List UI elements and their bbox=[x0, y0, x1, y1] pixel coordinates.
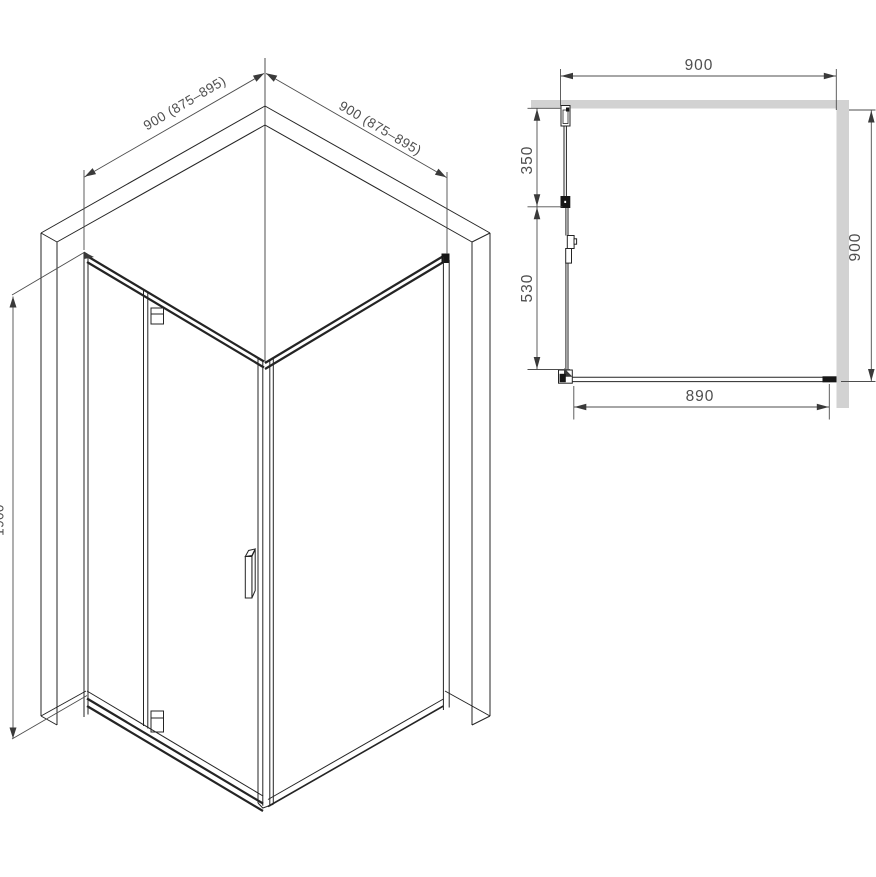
plan-view: 900 900 350 530 bbox=[519, 57, 876, 420]
fixed-side-panel bbox=[265, 254, 450, 807]
rail-end-cap bbox=[442, 254, 450, 264]
plan-panel-end-cap bbox=[823, 376, 837, 382]
dim-line-width-left bbox=[85, 74, 265, 178]
bottom-pivot-hinge bbox=[151, 711, 164, 732]
dim-label-plan-right: 900 bbox=[847, 233, 864, 262]
plan-door-assembly bbox=[559, 106, 577, 384]
door-bottom-rail bbox=[87, 691, 263, 796]
dim-label-height: 1900 bbox=[0, 504, 7, 536]
diagram-canvas: 900 (875–895) 900 (875–895) 1900 bbox=[0, 0, 876, 877]
shower-door-panel bbox=[84, 252, 273, 811]
plan-wall-top bbox=[531, 100, 849, 109]
plan-door-handle bbox=[566, 236, 577, 264]
dim-label-width-left: 900 (875–895) bbox=[141, 73, 229, 133]
dim-label-plan-bottom: 890 bbox=[686, 388, 715, 405]
side-panel-top-rail bbox=[265, 256, 444, 363]
isometric-view: 900 (875–895) 900 (875–895) 1900 bbox=[0, 58, 490, 811]
door-top-rail bbox=[87, 256, 264, 362]
shower-enclosure-drawing: 900 (875–895) 900 (875–895) 1900 bbox=[0, 0, 876, 877]
dim-line-width-right bbox=[266, 74, 447, 178]
right-wall bbox=[265, 106, 490, 725]
dim-label-plan-530: 530 bbox=[519, 274, 536, 303]
left-wall bbox=[41, 106, 265, 725]
dim-label-plan-top: 900 bbox=[685, 57, 714, 74]
iso-dimensions: 900 (875–895) 900 (875–895) 1900 bbox=[0, 70, 448, 739]
side-panel-bottom-rail bbox=[268, 699, 443, 800]
dim-label-width-right: 900 (875–895) bbox=[336, 98, 424, 158]
door-handle bbox=[245, 549, 255, 598]
dim-label-plan-350: 350 bbox=[519, 146, 536, 175]
top-pivot-hinge bbox=[151, 308, 164, 324]
plan-side-panel bbox=[572, 376, 836, 382]
